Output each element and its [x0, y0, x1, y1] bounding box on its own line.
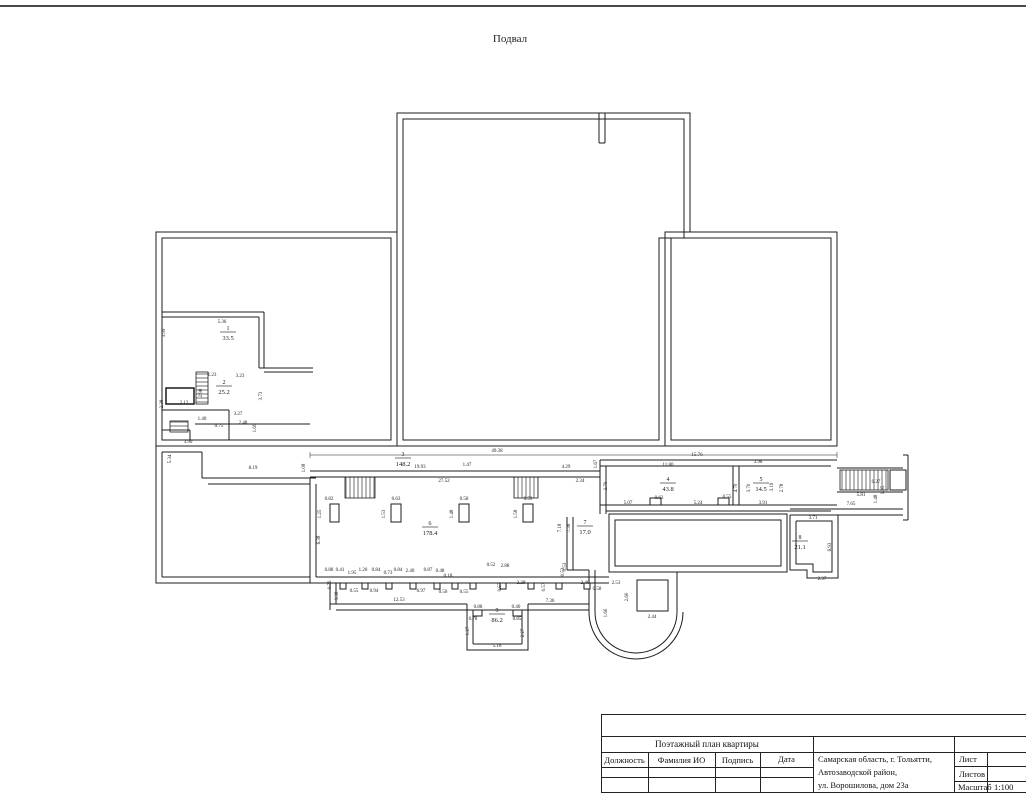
room-area: 86.2 [491, 617, 502, 624]
dimension-label: 1.67 [594, 459, 599, 468]
dimension-label: 6.38 [317, 535, 322, 544]
pier [386, 583, 392, 589]
dimension-label: 1.53 [382, 509, 387, 518]
dimension-label: 2.34 [576, 479, 585, 484]
titleblock-address-line3: ул. Ворошилова, дом 23а [818, 780, 952, 790]
dimension-label: 3.27 [234, 412, 243, 417]
dimension-label: 1.23 [208, 373, 217, 378]
dimension-label: 3.98 [754, 460, 763, 465]
stairs-corridor-left [345, 477, 375, 498]
dimension-label: 1.47 [463, 463, 472, 468]
dimension-label: 5.07 [624, 501, 633, 506]
dimension-label: 7.36 [546, 599, 555, 604]
titleblock-sheets-label: Листов [959, 769, 985, 779]
dimension-label: 7.65 [847, 502, 856, 507]
dimension-label: 0.40 [512, 605, 521, 610]
arc-column [637, 580, 668, 611]
dimension-label: 0.94 [370, 589, 379, 594]
dimension-label: 2.40 [581, 581, 590, 586]
dimension-label: 0.57 [498, 582, 503, 591]
pier [410, 583, 416, 589]
dimension-label: 1.60 [604, 608, 609, 617]
dimension-label: 0.55 [460, 590, 469, 595]
dimension-label: 2.90 [199, 388, 204, 397]
dim-line-corridor [310, 452, 837, 458]
dimension-label: 0.52 [487, 563, 496, 568]
dimension-label: 3.70 [747, 483, 752, 492]
dimension-label: 3.38 [335, 591, 340, 600]
floor-plan-drawing: 133.5225.23148.2443.8514.56178.4717.0821… [0, 0, 1026, 803]
room-area: 33.5 [222, 335, 233, 342]
wall-right-room-inner [671, 238, 831, 440]
titleblock-line [601, 777, 813, 778]
dimension-label: 3.71 [809, 516, 818, 521]
dimension-label: 1.40 [198, 417, 207, 422]
dimension-label: 1.95 [348, 571, 357, 576]
dimension-label: 0.87 [424, 568, 433, 573]
dimension-label: 1.08 [302, 463, 307, 472]
titleblock-line [601, 714, 602, 793]
dimension-label: 0.41 [336, 568, 345, 573]
wall-lowerleft-room [156, 446, 336, 583]
dimension-label: 3.70 [604, 481, 609, 490]
wall-lowerright-hall-inner [615, 520, 781, 566]
wall-partitions-room1 [162, 312, 313, 372]
room-number: 2 [223, 380, 226, 386]
stair-landing [890, 470, 906, 490]
dimension-label: 6.97 [417, 589, 426, 594]
stair-hatches [170, 372, 888, 498]
dimension-label: 2.38 [160, 399, 165, 408]
titleblock-line [954, 736, 955, 792]
room-number: 3 [402, 452, 405, 458]
room-number: 4 [667, 477, 670, 483]
dimension-label: 0.73 [384, 571, 393, 576]
room-number: 9 [496, 608, 499, 614]
dimension-label: 7.38 [567, 523, 572, 532]
room-number: 8 [799, 535, 802, 541]
dimension-label: 3.90 [184, 440, 193, 445]
dimension-label: 2.78 [780, 483, 785, 492]
dimension-label: 11.80 [662, 463, 674, 468]
dimension-label: 0.85 [513, 617, 522, 622]
room-area: 14.5 [755, 486, 766, 493]
stairs-left-small [170, 421, 188, 432]
titleblock-col-position: Должность [601, 755, 648, 765]
drawing-sheet: Подвал [0, 0, 1026, 803]
pier [362, 583, 368, 589]
wall-left-room-outer [156, 232, 397, 446]
dimension-label: 19.93 [414, 465, 426, 470]
dimension-label: 3.23 [236, 374, 245, 379]
wall-room6-bottom [316, 577, 609, 583]
dimension-label: 0.63 [392, 497, 401, 502]
wall-center-room-inner [403, 119, 684, 440]
room-area: 43.8 [662, 486, 673, 493]
dimension-label: 8.19 [249, 466, 258, 471]
dimension-label: 2.27 [521, 628, 526, 637]
stairs-corridor-right [514, 477, 538, 498]
dimension-label: 3.91 [759, 501, 768, 506]
dimension-label: 27.52 [438, 479, 450, 484]
dimension-label: 7.18 [558, 523, 563, 532]
room-area: 21.1 [794, 544, 805, 551]
dimension-label: 0.50 [439, 590, 448, 595]
dimension-label: 4.29 [562, 465, 571, 470]
dimension-label: 0.57 [542, 582, 547, 591]
room-area: 17.0 [579, 529, 590, 536]
dimension-label: 0.84 [372, 568, 381, 573]
dimension-label: 0.18 [444, 574, 453, 579]
stairs-upper-left [196, 372, 208, 404]
column [391, 504, 401, 522]
wall-arc-side [589, 570, 677, 612]
dimension-label: 3.99 [162, 328, 167, 337]
dimension-label: 0.55 [723, 495, 732, 500]
dimension-label: 6.93 [828, 542, 833, 551]
dimension-label: 5.36 [218, 320, 227, 325]
wall-top-notch [599, 113, 605, 143]
arc-bay [589, 612, 683, 659]
dimension-label: 2.53 [612, 581, 621, 586]
titleblock-address-line1: Самарская область, г. Тольятти, [818, 754, 952, 764]
dimension-label: 5.16 [493, 644, 502, 649]
dimension-label: 1.48 [874, 494, 879, 503]
dimension-label: 0.75 [215, 424, 224, 429]
room-number: 1 [227, 326, 230, 332]
titleblock-col-name: Фамилия ИО [648, 755, 715, 765]
dimension-label: 2.37 [818, 577, 827, 582]
dimension-label: 0.63 [655, 496, 664, 501]
dimension-label: 0.88 [325, 568, 334, 573]
dimension-label: 5.34 [168, 454, 173, 463]
pier [556, 583, 562, 589]
dimension-label: 1.48 [450, 509, 455, 518]
dimension-label: 5.24 [694, 501, 703, 506]
dimension-label: 2.88 [501, 564, 510, 569]
titleblock-col-date: Дата [760, 754, 813, 764]
dimension-label: 3.19 [770, 482, 775, 491]
dimension-label: 0.55 [350, 589, 359, 594]
pier [340, 583, 346, 589]
column [459, 504, 469, 522]
pier-room9-b [513, 610, 522, 616]
dimension-label: 3.73 [259, 391, 264, 400]
dimension-label: 2.60 [625, 592, 630, 601]
titleblock-scale-value: 1:100 [994, 782, 1013, 792]
titleblock-line [813, 736, 814, 792]
arc-outer [589, 612, 683, 659]
pier [528, 583, 534, 589]
titleblock-scale-label: Масштаб [958, 782, 992, 792]
dimension-label: 12.53 [393, 598, 405, 603]
wall-lowerright-hall-outer [609, 514, 787, 572]
dimension-label: 4.70 [734, 483, 739, 492]
titleblock-line [601, 767, 813, 768]
room-area: 178.4 [423, 530, 438, 537]
dimension-label: 2.40 [406, 569, 415, 574]
room-number: 7 [584, 520, 587, 526]
walls [156, 113, 908, 650]
dimension-label: 1.95 [881, 485, 886, 494]
titleblock-line [601, 714, 1026, 715]
dimension-label: 0.58 [593, 587, 602, 592]
column [523, 504, 533, 522]
dimension-label: 0.76 [328, 580, 333, 589]
room-area: 148.2 [396, 461, 411, 468]
dimension-label: 0.82 [325, 497, 334, 502]
dimension-label: 1.20 [359, 568, 368, 573]
dimension-label: 0.58 [460, 497, 469, 502]
dimension-label: 0.88 [474, 605, 483, 610]
titleblock-sheet-label: Лист [959, 754, 977, 764]
titleblock-address-line2: Автозаводской район, [818, 767, 952, 777]
titleblock-doc-title: Поэтажный план квартиры [601, 739, 813, 749]
dimension-label: 49.38 [491, 449, 503, 454]
wall-center-room-outer [397, 113, 690, 446]
column [330, 504, 339, 522]
room-number: 5 [760, 477, 763, 483]
dimension-label: 1.69 [253, 423, 258, 432]
pier-room9-a [473, 610, 482, 616]
dimension-label: 2.44 [648, 615, 657, 620]
dimension-label: 1.27 [466, 626, 471, 635]
dimension-label: 0.84 [394, 568, 403, 573]
dimension-label: 0.78 [469, 617, 478, 622]
pier [470, 583, 476, 589]
wall-right-room-outer [665, 232, 837, 446]
dimension-label: 15.76 [691, 453, 703, 458]
pier [434, 583, 440, 589]
dimension-label: 2.48 [239, 421, 248, 426]
dimension-label: 2.29 [517, 581, 526, 586]
dimension-label: 1.58 [514, 509, 519, 518]
room-area: 25.2 [218, 389, 229, 396]
room-number: 6 [429, 521, 432, 527]
dimension-label: 5.81 [857, 493, 866, 498]
dimension-label: 0.27 [872, 480, 881, 485]
pier [452, 583, 458, 589]
titleblock-line [954, 766, 1026, 767]
dimension-label: 1.25 [318, 509, 323, 518]
titleblock-col-signature: Подпись [715, 755, 760, 765]
dimension-label: 0.59 [524, 497, 533, 502]
titleblock-line [601, 792, 1026, 793]
dimension-label: 0.53 [563, 562, 568, 571]
dimension-label: 2.12 [180, 401, 189, 406]
